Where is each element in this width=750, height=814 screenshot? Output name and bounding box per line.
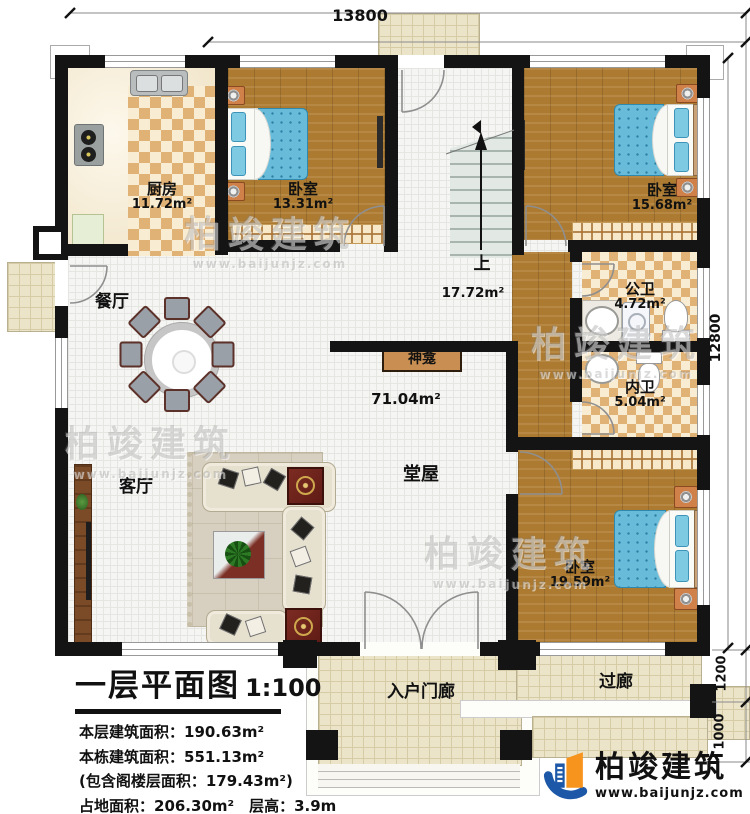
- living-label: 客厅: [112, 479, 160, 497]
- bedroom2-door-swing: [526, 206, 566, 246]
- entry-porch-label: 入户门廊: [381, 684, 461, 702]
- stairs-annotations: [446, 120, 514, 250]
- room-name: 卧室: [263, 182, 343, 198]
- brand-name: 柏竣建筑: [595, 742, 745, 786]
- bedroom1-label: 卧室 13.31m²: [263, 182, 343, 211]
- room-name: 入户门廊: [381, 684, 461, 702]
- room-area: 15.68m²: [622, 199, 702, 213]
- main-hall-area-label: 71.04m²: [366, 392, 446, 408]
- door-swings: [70, 70, 614, 649]
- room-area: 5.04m²: [600, 396, 680, 410]
- room-name: 上: [442, 256, 522, 274]
- dining-label: 餐厅: [88, 294, 136, 312]
- brand-url: www.baijunjz.com: [595, 786, 745, 801]
- bedroom1-door-swing: [344, 206, 384, 246]
- stair-label: 上: [442, 256, 522, 274]
- room-name: 厨房: [122, 182, 202, 198]
- room-name: 内卫: [600, 380, 680, 396]
- room-name: 公卫: [600, 282, 680, 298]
- private-bath-label: 内卫 5.04m²: [600, 380, 680, 409]
- room-name: 餐厅: [88, 294, 136, 312]
- room-area: 11.72m²: [122, 198, 202, 212]
- stat-line: 占地面积：206.30m² 层高：3.9m: [79, 794, 325, 814]
- room-name: 堂屋: [396, 466, 446, 485]
- room-area: 17.72m²: [437, 286, 509, 300]
- dim-right: 12800: [708, 308, 724, 368]
- room-area: 4.72m²: [600, 298, 680, 312]
- room-area: 19.59m²: [546, 576, 614, 590]
- room-area: 13.31m²: [263, 198, 343, 212]
- main-hall-label: 堂屋: [396, 466, 446, 485]
- bedroom3-door-swing: [520, 452, 562, 494]
- kitchen-label: 厨房 11.72m²: [122, 182, 202, 211]
- room-area: 71.04m²: [366, 392, 446, 408]
- stair-area-label: 17.72m²: [437, 286, 509, 300]
- stat-line: 本栋建筑面积：551.13m²: [79, 745, 325, 770]
- floor-plan: 神龛: [0, 0, 750, 814]
- stat-line: (包含阁楼层面积：179.43m²): [79, 769, 325, 794]
- room-name: 过廊: [592, 674, 640, 692]
- bedroom2-label: 卧室 15.68m²: [622, 183, 702, 212]
- brand-logo-icon: [543, 744, 595, 802]
- room-name: 卧室: [622, 183, 702, 199]
- plan-title: 一层平面图: [75, 668, 240, 704]
- bedroom3-label: 卧室 19.59m²: [546, 560, 614, 589]
- plan-scale: 1:100: [245, 674, 321, 702]
- public-bath-label: 公卫 4.72m²: [600, 282, 680, 311]
- back-door-swing: [402, 70, 444, 112]
- title-rule: [75, 709, 281, 714]
- dim-porch: 1200: [715, 650, 730, 698]
- room-name: 客厅: [112, 479, 160, 497]
- entry-double-door-swing: [365, 592, 478, 649]
- stat-line: 本层建筑面积：190.63m²: [79, 720, 325, 745]
- dim-top: 13800: [320, 6, 400, 25]
- corridor-label: 过廊: [592, 674, 640, 692]
- title-block: 一层平面图 1:100 本层建筑面积：190.63m² 本栋建筑面积：551.1…: [75, 660, 325, 814]
- room-name: 卧室: [546, 560, 614, 576]
